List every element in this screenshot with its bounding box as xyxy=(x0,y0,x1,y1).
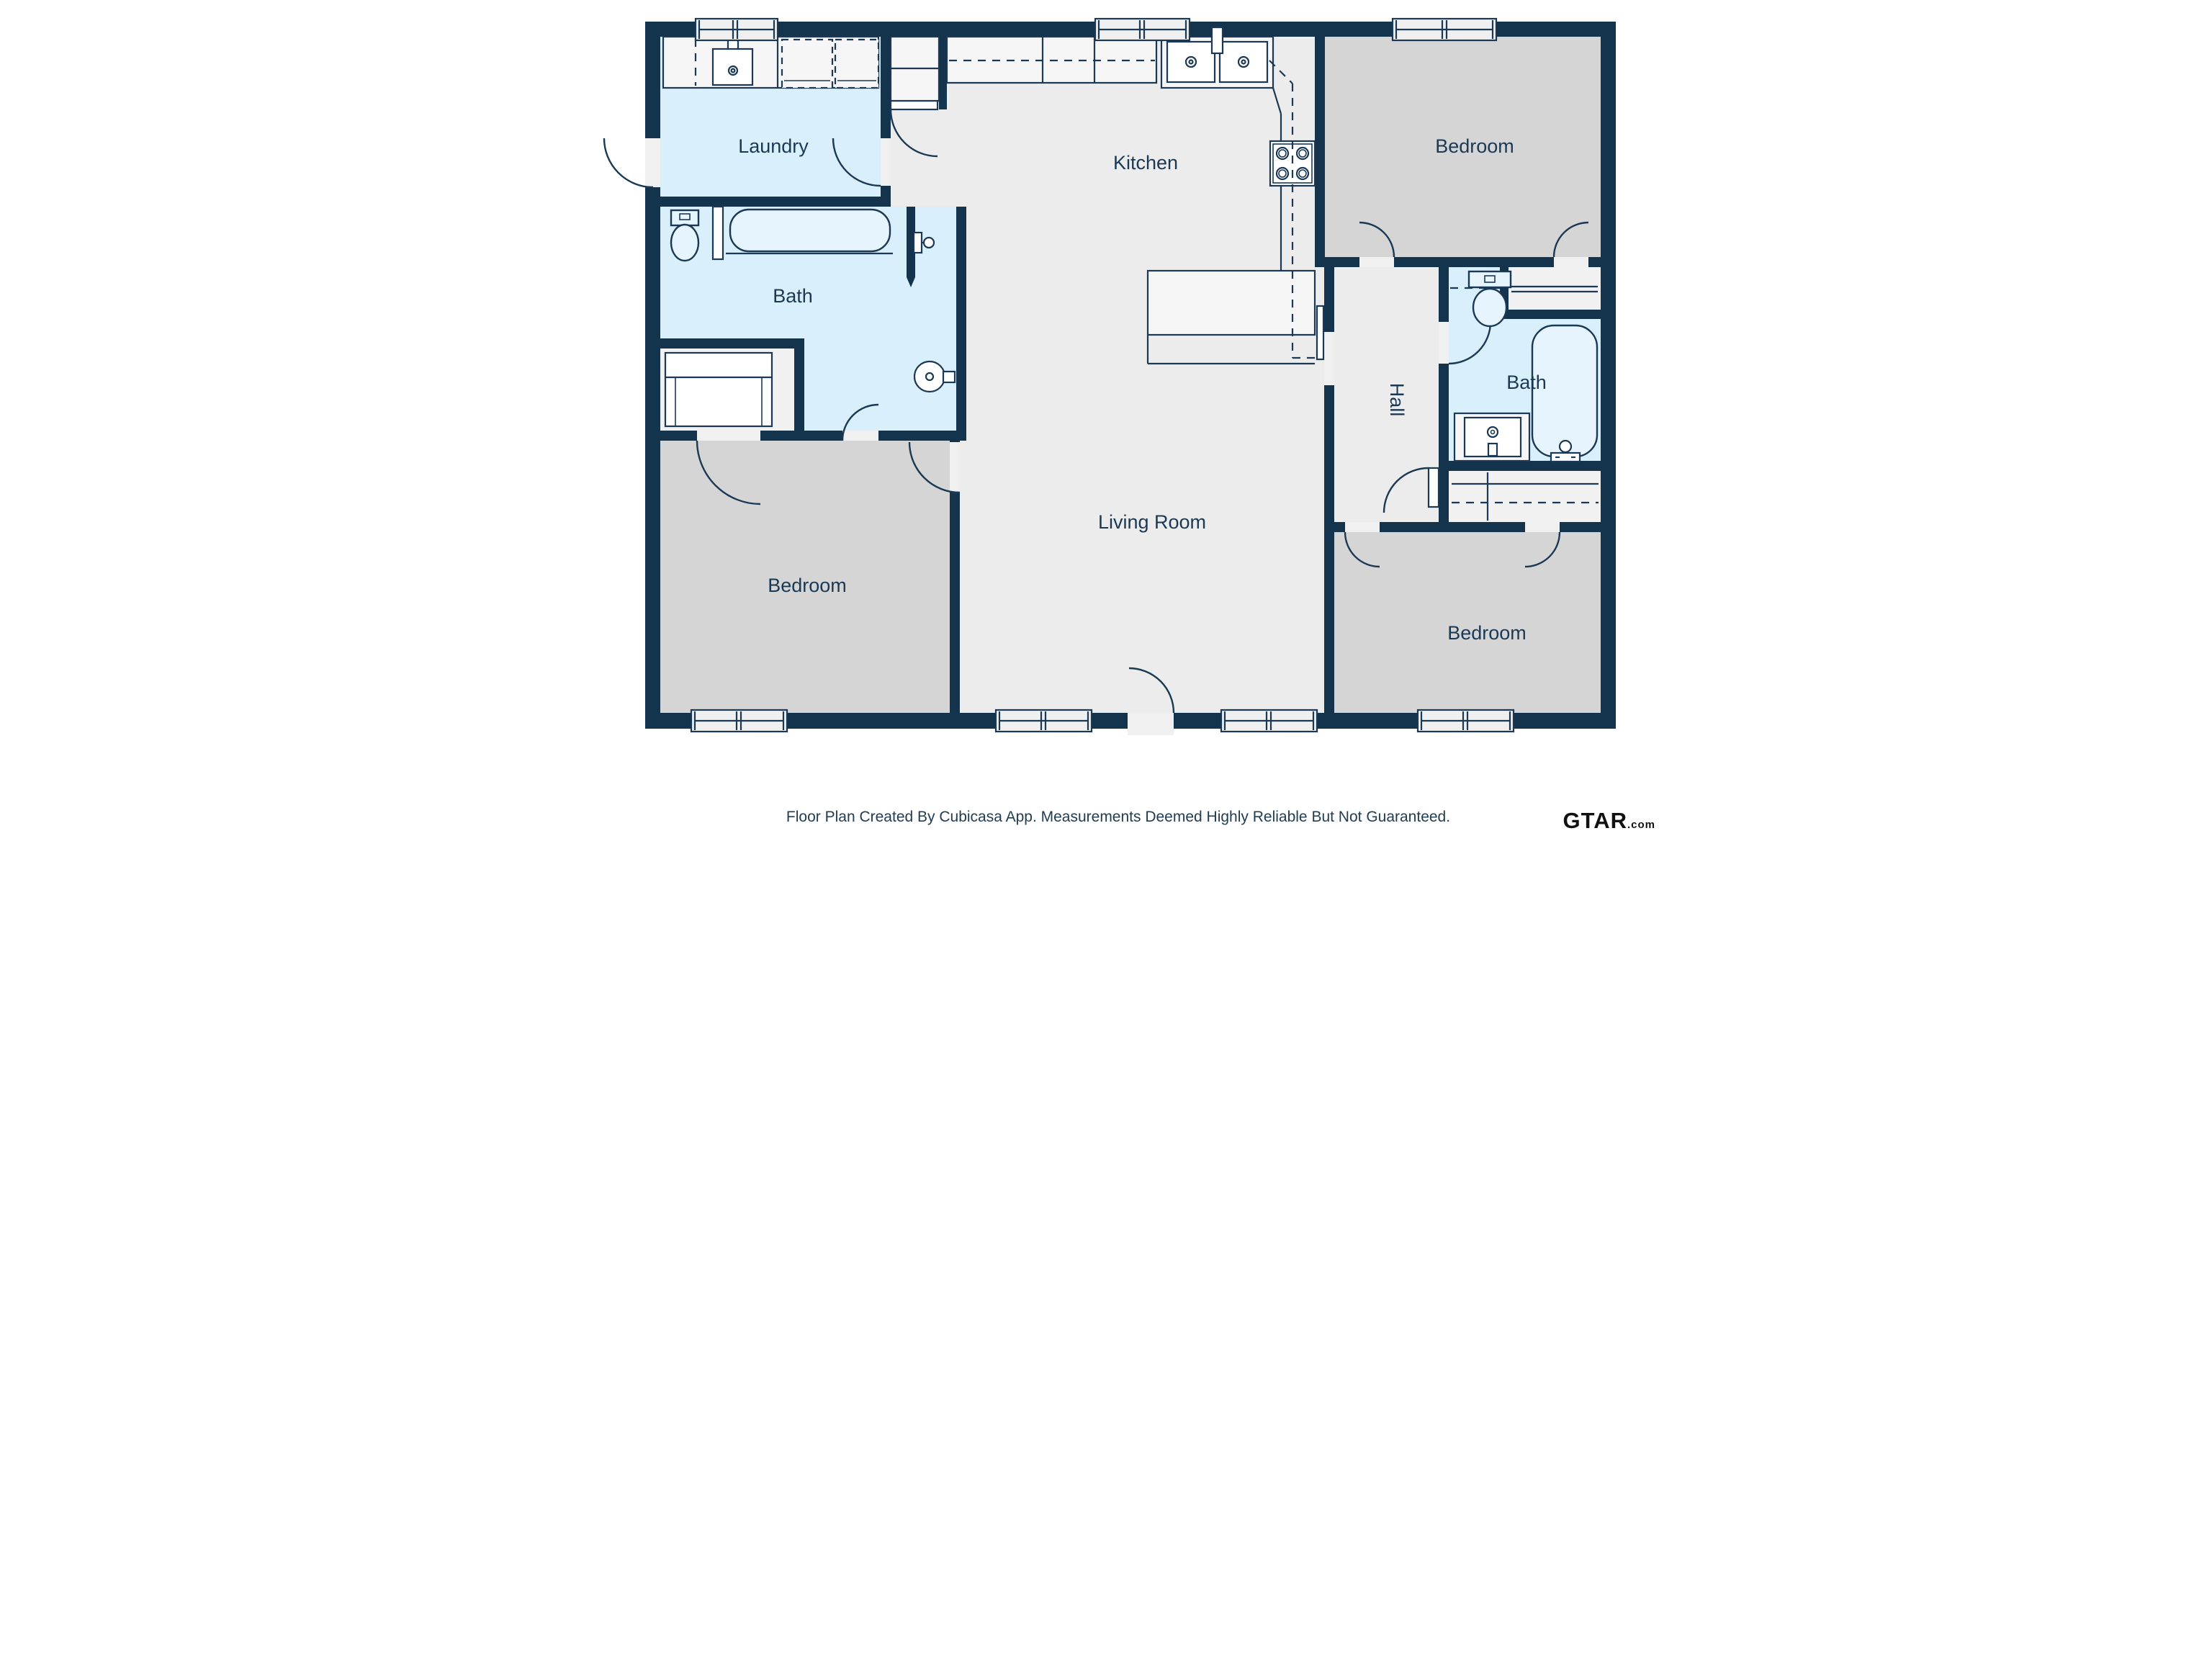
gtar-logo: GTAR.com xyxy=(1563,808,1655,829)
bathtub-left xyxy=(730,210,890,251)
tub-faucet-knob xyxy=(1560,441,1571,452)
closet-bottom-left xyxy=(665,353,772,426)
bedroom-top-right-label: Bedroom xyxy=(1435,135,1514,157)
floor-plan-page: Laundry Kitchen Bedroom Bath Hall Bath L… xyxy=(553,0,1659,829)
bedroom-bottom-left-label: Bedroom xyxy=(768,575,847,596)
laundry-bottom-wall xyxy=(660,197,891,207)
footer-disclaimer: Floor Plan Created By Cubicasa App. Meas… xyxy=(786,809,1450,825)
bath-left-door-opening xyxy=(842,431,878,441)
exterior-wall-right xyxy=(1601,22,1616,729)
window-living-2 xyxy=(1221,710,1317,732)
washer-icon xyxy=(782,40,832,88)
dryer-icon xyxy=(835,40,878,88)
hall-pocket-door-leaf xyxy=(1317,306,1323,359)
living-hall-opening xyxy=(1324,332,1334,385)
bathtub-icon xyxy=(726,210,893,253)
shower-valve-plate xyxy=(914,233,922,253)
pedestal-sink-tap xyxy=(943,372,955,382)
closet-bl-right-wall xyxy=(794,338,804,441)
hall-bath-wall xyxy=(1439,267,1449,471)
wardrobe-icon xyxy=(665,353,772,426)
toilet-right-icon xyxy=(1469,271,1511,326)
toilet-tank xyxy=(671,210,698,225)
kitchen-bedroom-wall xyxy=(1315,37,1325,267)
bedroom-tr-closet-door-opening xyxy=(1554,257,1588,267)
toilet-bowl xyxy=(671,225,698,261)
hall-label: Hall xyxy=(1386,383,1408,417)
sink-faucet xyxy=(1212,27,1223,53)
sink-basin-left xyxy=(1167,42,1215,82)
laundry-fixtures xyxy=(663,35,878,88)
closet-tub-wall xyxy=(1500,310,1601,319)
exterior-wall-left xyxy=(645,22,660,729)
closet-bl-door-opening xyxy=(697,431,760,441)
window-bedroom-bottom-right xyxy=(1418,710,1514,732)
bath-left-right-wall xyxy=(956,207,966,441)
window-bedroom-bottom-left xyxy=(691,710,787,732)
bathtub-right-icon xyxy=(1532,325,1597,462)
bath-right-label: Bath xyxy=(1506,372,1547,393)
vanity-faucet xyxy=(1488,444,1497,456)
front-entry-threshold xyxy=(1128,729,1174,735)
window-living-1 xyxy=(996,710,1092,732)
window-laundry xyxy=(696,19,778,40)
hall-closet-door-leaf xyxy=(1429,468,1439,507)
window-bedroom-top-right xyxy=(1393,19,1496,40)
vanity-sink-icon xyxy=(1455,413,1529,461)
laundry-label: Laundry xyxy=(738,135,809,157)
kitchen-label: Kitchen xyxy=(1113,152,1178,174)
pantry-fridge xyxy=(891,37,939,101)
bedroom-br-door-opening xyxy=(1345,522,1380,532)
closet-top-right-floor xyxy=(1509,267,1601,310)
tub-partition xyxy=(713,207,723,259)
living-room-label: Living Room xyxy=(1098,511,1206,533)
bedroom-br-closet-door-opening xyxy=(1525,522,1560,532)
laundry-door-opening xyxy=(881,138,891,186)
gtar-logo-text: GTAR xyxy=(1563,808,1627,829)
hall-closet-wall xyxy=(1439,471,1449,522)
front-entry-opening xyxy=(1128,713,1174,729)
floor-plan: Laundry Kitchen Bedroom Bath Hall Bath L… xyxy=(553,0,1659,829)
pedestal-sink-bowl xyxy=(914,361,945,392)
bath-right-door-opening xyxy=(1439,322,1449,364)
peninsula-counter xyxy=(1148,271,1315,335)
bedroom-bottom-right-label: Bedroom xyxy=(1447,622,1527,644)
toilet-r-bowl xyxy=(1473,289,1506,326)
pantry-door-leaf xyxy=(891,101,938,109)
sink-basin-right xyxy=(1220,42,1267,82)
closet-strip-floor xyxy=(1449,471,1601,522)
bath-left-label: Bath xyxy=(773,285,813,307)
toilet-r-tank xyxy=(1469,271,1511,287)
closet-bl-top-wall xyxy=(660,338,804,349)
entry-side-door-opening xyxy=(645,138,660,187)
bedroom-bl-door-opening xyxy=(950,442,960,493)
gtar-logo-suffix: .com xyxy=(1627,819,1655,829)
pantry-stub-wall xyxy=(939,37,947,109)
toilet-icon xyxy=(671,210,698,261)
shower-valve-knob xyxy=(924,238,934,248)
window-kitchen xyxy=(1095,19,1190,40)
bedroom-tr-door-opening xyxy=(1359,257,1394,267)
